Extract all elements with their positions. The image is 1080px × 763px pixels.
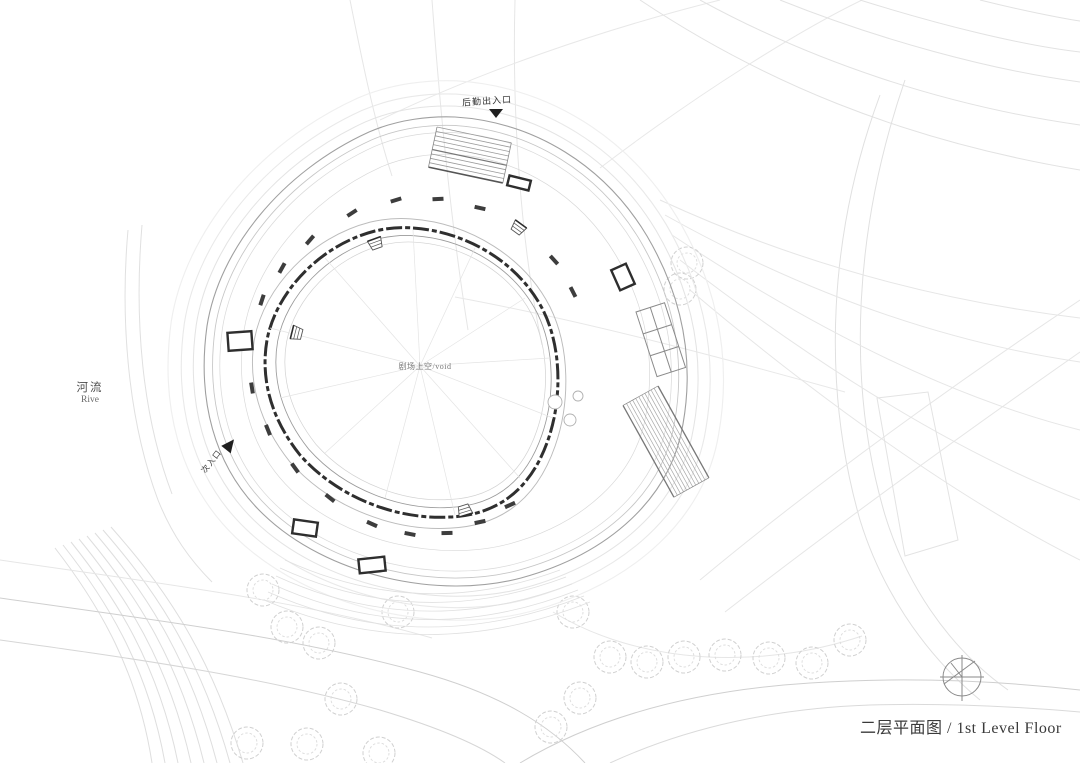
triangle-down-icon: [489, 109, 503, 118]
floor-plan-sheet: 后勤出入口 次入口 河流 Rive 剧场上空/void 二层平面图 / 1st …: [0, 0, 1080, 763]
river-label-en: Rive: [68, 395, 112, 407]
inner-curtain-wall: [265, 228, 558, 518]
sheet-title: 二层平面图 / 1st Level Floor: [860, 714, 1060, 738]
compass-icon: [940, 655, 984, 701]
site-plan-canvas: [0, 0, 1080, 763]
void-radial-lines: [270, 230, 553, 515]
roof-frame-elements: [227, 175, 634, 573]
grand-stair-north: [428, 127, 511, 183]
south-terrace-steps: [264, 560, 590, 635]
river-label-zh: 河流: [68, 381, 112, 395]
long-stair-east: [623, 386, 709, 497]
landscape-paths: [0, 0, 1080, 763]
river-label: 河流 Rive: [68, 381, 112, 407]
central-void-label: 剧场上空/void: [380, 361, 470, 372]
